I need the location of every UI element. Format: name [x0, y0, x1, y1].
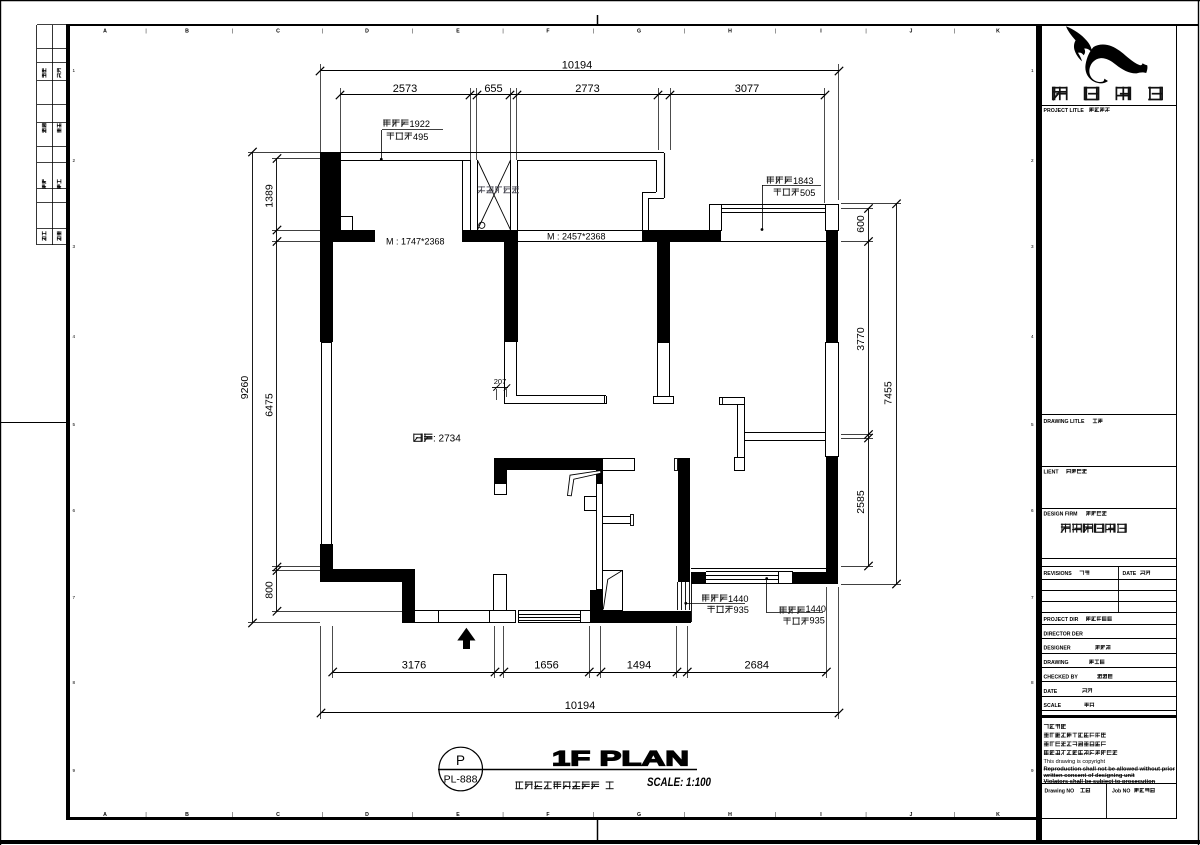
svg-text:|: | [865, 812, 866, 818]
svg-text:Reproduction shall not be allo: Reproduction shall not be allowed withou… [1044, 767, 1176, 773]
svg-text:E: E [456, 812, 460, 818]
svg-text:REVISIONS: REVISIONS [1044, 571, 1073, 577]
svg-text:|: | [322, 29, 323, 35]
svg-text:3176: 3176 [402, 660, 426, 672]
svg-text:1: 1 [73, 68, 76, 73]
svg-text:3: 3 [73, 244, 76, 249]
svg-text:2: 2 [1031, 158, 1034, 163]
svg-text:DIRECTOR DER: DIRECTOR DER [1044, 631, 1084, 637]
svg-text:A: A [103, 812, 107, 818]
svg-text:7455: 7455 [883, 381, 895, 405]
svg-text:DRAWING LITLE: DRAWING LITLE [1044, 419, 1085, 425]
svg-text:6475: 6475 [264, 393, 276, 417]
svg-text:M : 2457*2368: M : 2457*2368 [547, 232, 606, 242]
svg-text:P: P [456, 753, 465, 768]
svg-text:1922: 1922 [410, 119, 430, 129]
svg-text:K: K [996, 812, 1000, 818]
svg-text:SCALE: 1:100: SCALE: 1:100 [647, 775, 711, 789]
svg-text:CHECKED BY: CHECKED BY [1044, 675, 1079, 681]
svg-text:|: | [865, 29, 866, 35]
svg-text:|: | [954, 29, 955, 35]
svg-text:|: | [322, 812, 323, 818]
svg-text:A: A [103, 29, 107, 35]
svg-text:7: 7 [73, 595, 76, 600]
svg-text:H: H [728, 812, 732, 818]
svg-text:1389: 1389 [264, 184, 276, 208]
svg-text:935: 935 [810, 616, 825, 626]
svg-text:E: E [456, 29, 460, 35]
svg-text:|: | [954, 812, 955, 818]
svg-text:1843: 1843 [793, 176, 813, 186]
svg-text:495: 495 [413, 132, 428, 142]
svg-text:DATE: DATE [1044, 689, 1058, 695]
svg-text:D: D [365, 812, 369, 818]
svg-text:4: 4 [73, 334, 76, 339]
svg-text:PROJECT DIR: PROJECT DIR [1044, 617, 1079, 623]
svg-text:J: J [910, 29, 913, 35]
svg-text:3077: 3077 [735, 83, 759, 95]
svg-text:DESIGN FIRM: DESIGN FIRM [1044, 512, 1078, 518]
svg-text:935: 935 [734, 605, 749, 615]
svg-text:5: 5 [73, 422, 76, 427]
svg-text:K: K [996, 29, 1000, 35]
svg-text:1F PLAN: 1F PLAN [552, 748, 689, 771]
svg-text:600: 600 [855, 215, 867, 233]
svg-text:9: 9 [1031, 768, 1034, 773]
svg-text:|: | [412, 29, 413, 35]
svg-text:|: | [502, 29, 503, 35]
svg-text:|: | [232, 29, 233, 35]
svg-text:2773: 2773 [575, 83, 599, 95]
svg-text:6: 6 [73, 508, 76, 513]
svg-text:J: J [910, 812, 913, 818]
svg-text:G: G [637, 812, 641, 818]
svg-text:505: 505 [800, 188, 815, 198]
svg-text:|: | [412, 812, 413, 818]
svg-text:|: | [775, 812, 776, 818]
svg-text:G: G [637, 29, 641, 35]
svg-text:1: 1 [1031, 68, 1034, 73]
svg-text:PL-888: PL-888 [444, 774, 478, 786]
svg-text:655: 655 [484, 83, 502, 95]
svg-text:|: | [775, 29, 776, 35]
svg-text:9260: 9260 [239, 376, 251, 400]
svg-text:|: | [593, 29, 594, 35]
svg-text:7: 7 [1031, 595, 1034, 600]
svg-text:1494: 1494 [627, 660, 651, 672]
svg-text:F: F [546, 29, 549, 35]
svg-text:M : 1747*2368: M : 1747*2368 [386, 237, 445, 247]
svg-text:6: 6 [1031, 508, 1034, 513]
svg-text:|: | [145, 812, 146, 818]
svg-text:8: 8 [1031, 680, 1034, 685]
svg-text:10194: 10194 [565, 700, 596, 712]
svg-text:Job NO: Job NO [1112, 789, 1130, 795]
svg-text:10194: 10194 [562, 60, 593, 72]
svg-text:1656: 1656 [534, 660, 558, 672]
svg-text:3770: 3770 [855, 327, 867, 351]
svg-text:D: D [365, 29, 369, 35]
svg-text:207: 207 [494, 377, 507, 386]
svg-text:H: H [728, 29, 732, 35]
svg-text:Drawing NO: Drawing NO [1045, 789, 1075, 795]
svg-text:DESIGNER: DESIGNER [1044, 646, 1071, 652]
svg-text:|: | [684, 812, 685, 818]
svg-text:|: | [593, 812, 594, 818]
svg-text:4: 4 [1031, 334, 1034, 339]
svg-text:: 2734: : 2734 [433, 434, 461, 445]
svg-text:C: C [276, 29, 280, 35]
svg-text:800: 800 [264, 581, 276, 599]
svg-text:B: B [185, 29, 189, 35]
svg-text:3: 3 [1031, 244, 1034, 249]
svg-text:DRAWING: DRAWING [1044, 660, 1069, 666]
svg-text:LIENT: LIENT [1044, 470, 1060, 476]
svg-text:DATE: DATE [1123, 571, 1137, 577]
svg-text:|: | [232, 812, 233, 818]
svg-text:2684: 2684 [745, 660, 769, 672]
svg-text:2573: 2573 [393, 83, 417, 95]
svg-text:2585: 2585 [855, 490, 867, 514]
svg-text:1440: 1440 [806, 604, 826, 614]
svg-text:Violators shall be subject to: Violators shall be subject to prosecutio… [1044, 779, 1156, 785]
svg-text:2: 2 [73, 158, 76, 163]
svg-text:C: C [276, 812, 280, 818]
svg-text:PROJECT LITLE: PROJECT LITLE [1044, 108, 1085, 114]
svg-text:|: | [502, 812, 503, 818]
svg-text:9: 9 [73, 768, 76, 773]
svg-text:F: F [546, 812, 549, 818]
svg-text:1440: 1440 [728, 594, 748, 604]
svg-text:This drawing is copyright: This drawing is copyright [1044, 759, 1106, 765]
svg-text:B: B [185, 812, 189, 818]
svg-text:|: | [684, 29, 685, 35]
svg-text:5: 5 [1031, 422, 1034, 427]
svg-text:SCALE: SCALE [1044, 703, 1062, 709]
svg-text:|: | [145, 29, 146, 35]
svg-text:8: 8 [73, 680, 76, 685]
